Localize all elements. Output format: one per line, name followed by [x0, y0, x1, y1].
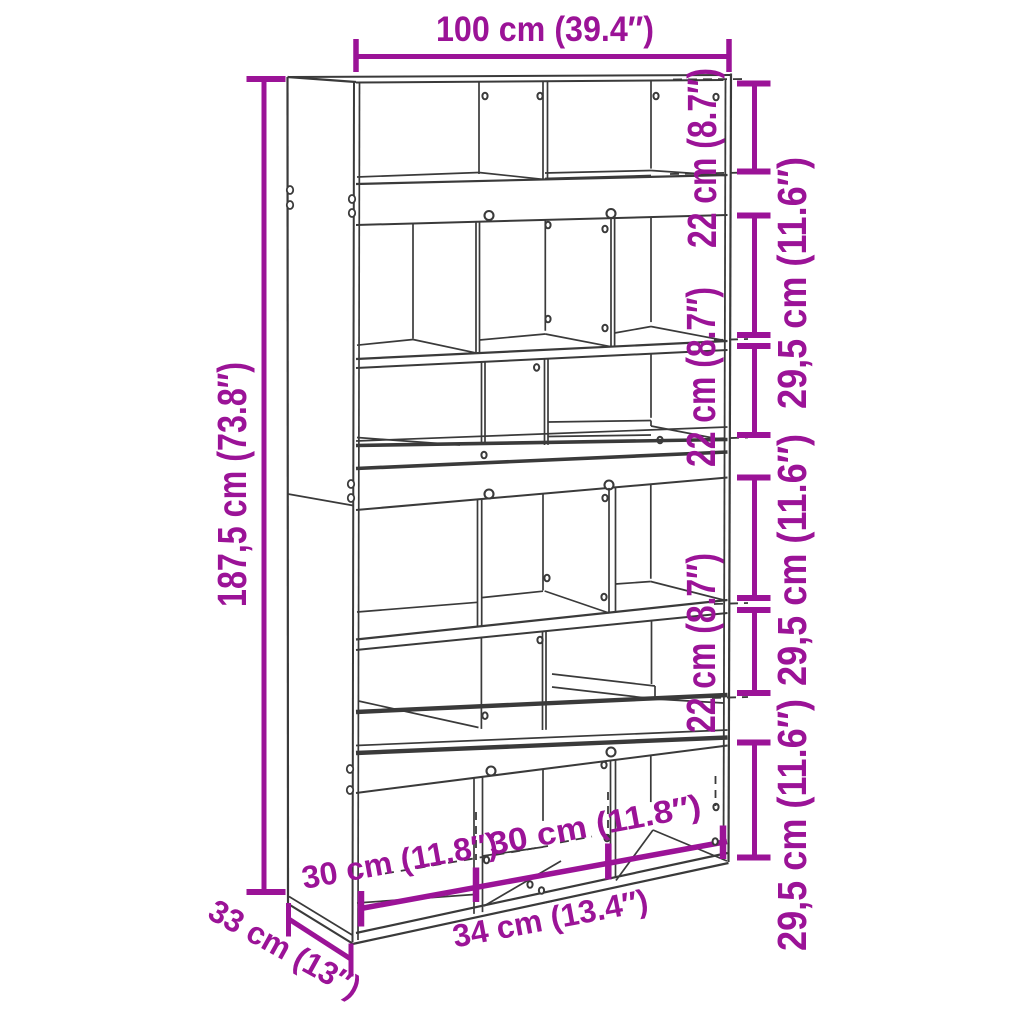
svg-text:29,5 cm (11.6″): 29,5 cm (11.6″): [769, 157, 815, 409]
svg-text:187,5 cm (73.8″): 187,5 cm (73.8″): [209, 362, 255, 607]
svg-text:22 cm (8.7″): 22 cm (8.7″): [679, 68, 725, 248]
svg-text:22 cm (8.7″): 22 cm (8.7″): [678, 287, 724, 467]
svg-text:29,5 cm (11.6″): 29,5 cm (11.6″): [769, 699, 815, 951]
svg-text:29,5 cm (11.6″): 29,5 cm (11.6″): [769, 434, 815, 686]
svg-text:100 cm (39.4″): 100 cm (39.4″): [436, 10, 654, 49]
svg-text:22 cm (8.7″): 22 cm (8.7″): [678, 553, 724, 733]
